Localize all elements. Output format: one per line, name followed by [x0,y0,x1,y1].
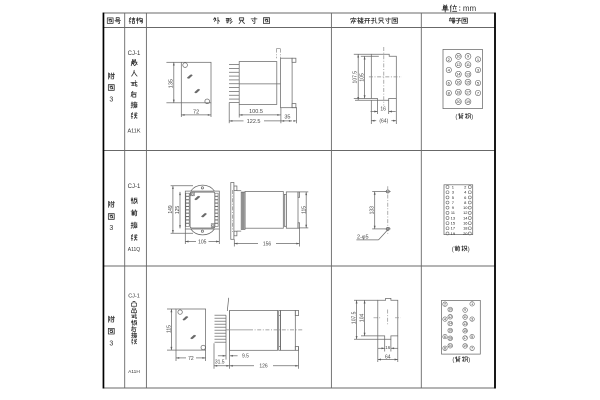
svg-text:3: 3 [109,96,113,103]
svg-text:9.5: 9.5 [242,354,249,360]
svg-text:35: 35 [284,115,290,121]
svg-text:105: 105 [359,73,365,82]
svg-text:122.5: 122.5 [247,119,261,125]
svg-text:6: 6 [444,335,446,339]
svg-text:CJ-1: CJ-1 [128,51,141,57]
svg-text:): ) [468,246,470,253]
svg-text:A11Q: A11Q [128,247,141,253]
svg-text:133: 133 [370,206,376,215]
svg-text:mm: mm [463,4,477,13]
svg-text:5: 5 [471,335,473,339]
svg-text:64: 64 [385,354,391,360]
svg-text:149: 149 [168,205,174,214]
svg-text:11: 11 [463,315,467,319]
svg-text:16: 16 [456,81,460,85]
svg-text:16: 16 [448,329,452,333]
svg-text:10: 10 [456,55,460,59]
svg-text:): ) [471,113,473,120]
svg-text:17: 17 [463,336,467,340]
svg-text:16: 16 [385,345,391,350]
svg-text:9: 9 [467,55,469,59]
svg-text:2-φ5: 2-φ5 [357,234,369,240]
svg-text:19: 19 [463,344,467,348]
svg-text:105: 105 [198,239,207,245]
svg-text:100.5: 100.5 [249,109,263,115]
svg-text:104: 104 [360,314,366,323]
svg-text:3: 3 [109,225,113,232]
svg-text:126: 126 [259,364,268,370]
svg-text:13: 13 [466,73,470,77]
svg-text:11: 11 [466,63,470,67]
svg-text:135: 135 [169,79,175,88]
svg-text:107.5: 107.5 [353,71,359,84]
svg-text:3: 3 [471,317,473,321]
svg-text:125: 125 [175,206,181,215]
svg-text:18: 18 [448,336,452,340]
svg-text:): ) [468,357,470,364]
svg-text:(64): (64) [379,119,388,125]
svg-text:20: 20 [448,344,452,348]
svg-text:72: 72 [193,109,199,115]
svg-text:10: 10 [448,308,452,312]
svg-text:12: 12 [456,63,460,67]
svg-text:12: 12 [448,315,452,319]
svg-text:7: 7 [471,347,473,351]
svg-text:8: 8 [444,347,446,351]
svg-text:17: 17 [466,91,470,95]
svg-text:19: 19 [466,100,470,104]
svg-text:1: 1 [471,302,473,306]
svg-text:156: 156 [263,241,272,247]
svg-text:20: 20 [463,231,468,236]
svg-text:14: 14 [448,322,452,326]
svg-text:A11H: A11H [128,369,140,375]
svg-text:13: 13 [463,322,467,326]
svg-text:3: 3 [109,340,113,347]
svg-text:4: 4 [444,317,446,321]
svg-text:15: 15 [466,81,470,85]
svg-text:CJ-1: CJ-1 [128,184,141,190]
svg-text:2: 2 [444,302,446,306]
svg-text:CJ-1: CJ-1 [128,293,140,299]
svg-text:20: 20 [456,100,460,104]
svg-text:72: 72 [188,356,194,362]
svg-text:31.5: 31.5 [215,359,225,365]
svg-text:15: 15 [463,329,467,333]
svg-text:14: 14 [456,73,460,77]
svg-text:18: 18 [456,91,460,95]
svg-text:16: 16 [380,106,386,112]
svg-text:9: 9 [464,308,466,312]
svg-text:107.5: 107.5 [351,311,357,324]
svg-text:A11K: A11K [127,129,140,135]
svg-text:19: 19 [451,231,456,236]
svg-text:115: 115 [166,325,172,333]
svg-text:115: 115 [301,206,307,214]
